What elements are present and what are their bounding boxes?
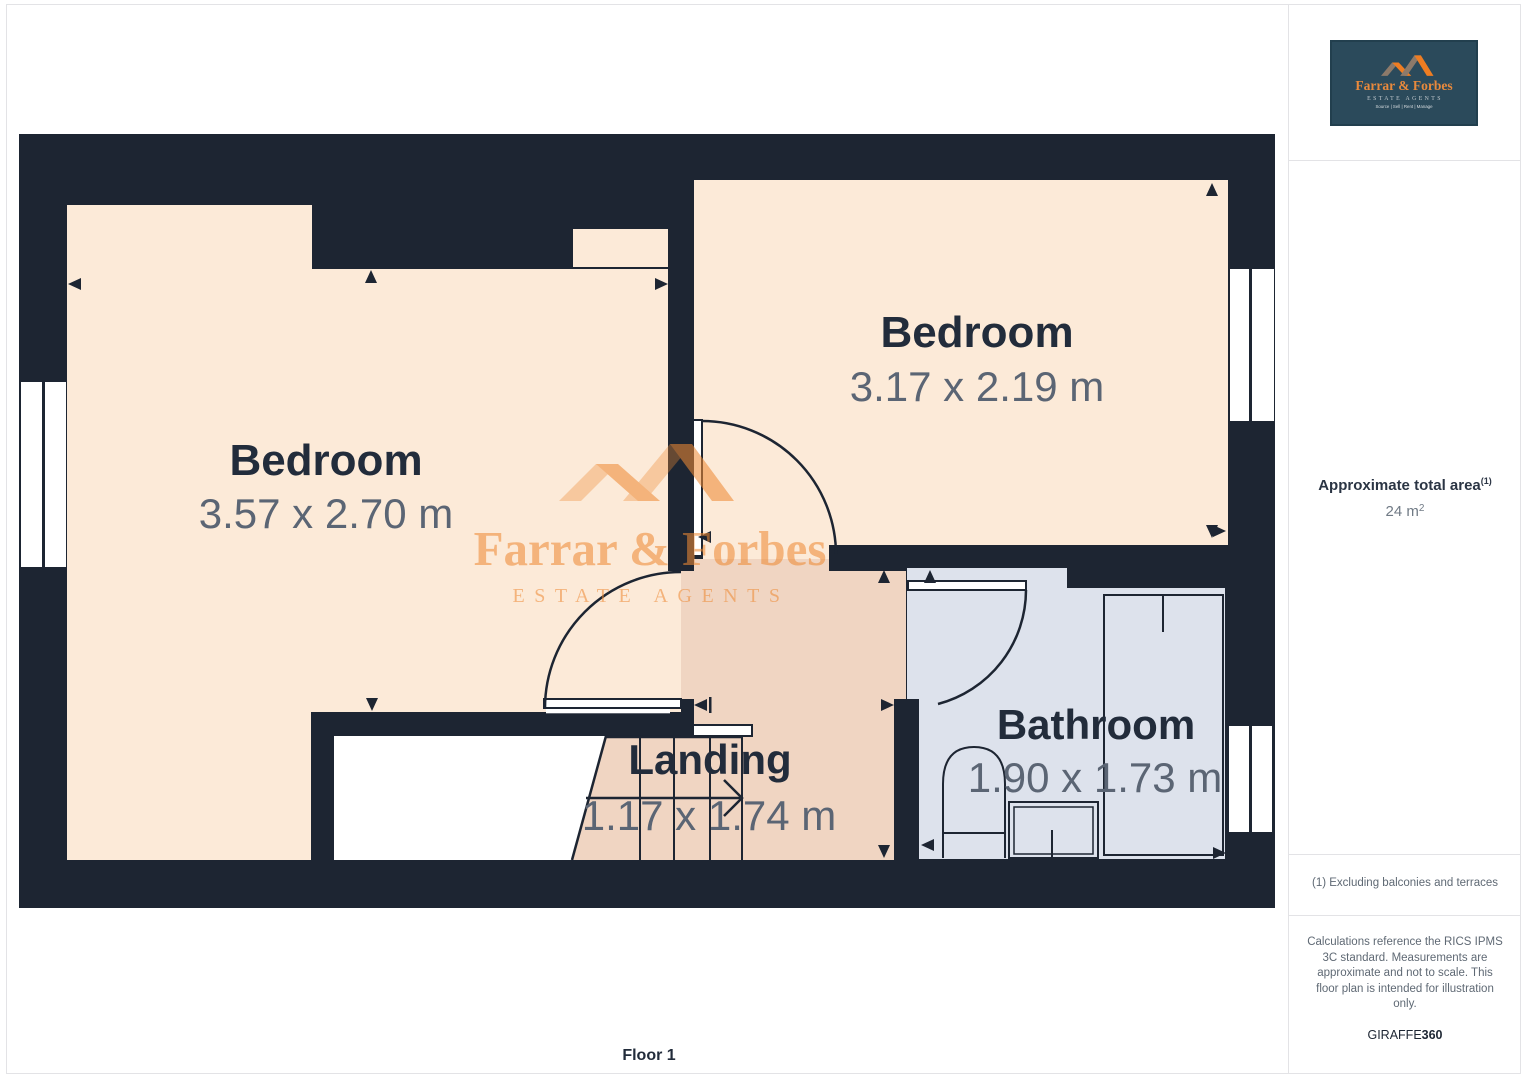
svg-text:Farrar & Forbes: Farrar & Forbes (474, 521, 827, 576)
svg-text:Bathroom: Bathroom (997, 701, 1195, 748)
svg-text:3.57 x 2.70 m: 3.57 x 2.70 m (199, 490, 453, 537)
svg-text:3.17 x 2.19 m: 3.17 x 2.19 m (850, 363, 1104, 410)
svg-text:Farrar & Forbes: Farrar & Forbes (1355, 78, 1452, 93)
svg-text:ESTATE AGENTS: ESTATE AGENTS (1367, 96, 1443, 102)
svg-text:Source | Sell | Rent | Manage: Source | Sell | Rent | Manage (1375, 104, 1433, 109)
svg-text:Floor 1: Floor 1 (622, 1047, 675, 1064)
svg-text:ESTATE AGENTS: ESTATE AGENTS (513, 585, 790, 607)
svg-text:Bedroom: Bedroom (229, 436, 422, 485)
svg-text:Bedroom: Bedroom (880, 308, 1073, 357)
svg-text:1.17 x 1.74 m: 1.17 x 1.74 m (582, 792, 836, 839)
svg-text:Landing: Landing (628, 736, 791, 783)
svg-text:1.90 x 1.73 m: 1.90 x 1.73 m (968, 754, 1222, 801)
